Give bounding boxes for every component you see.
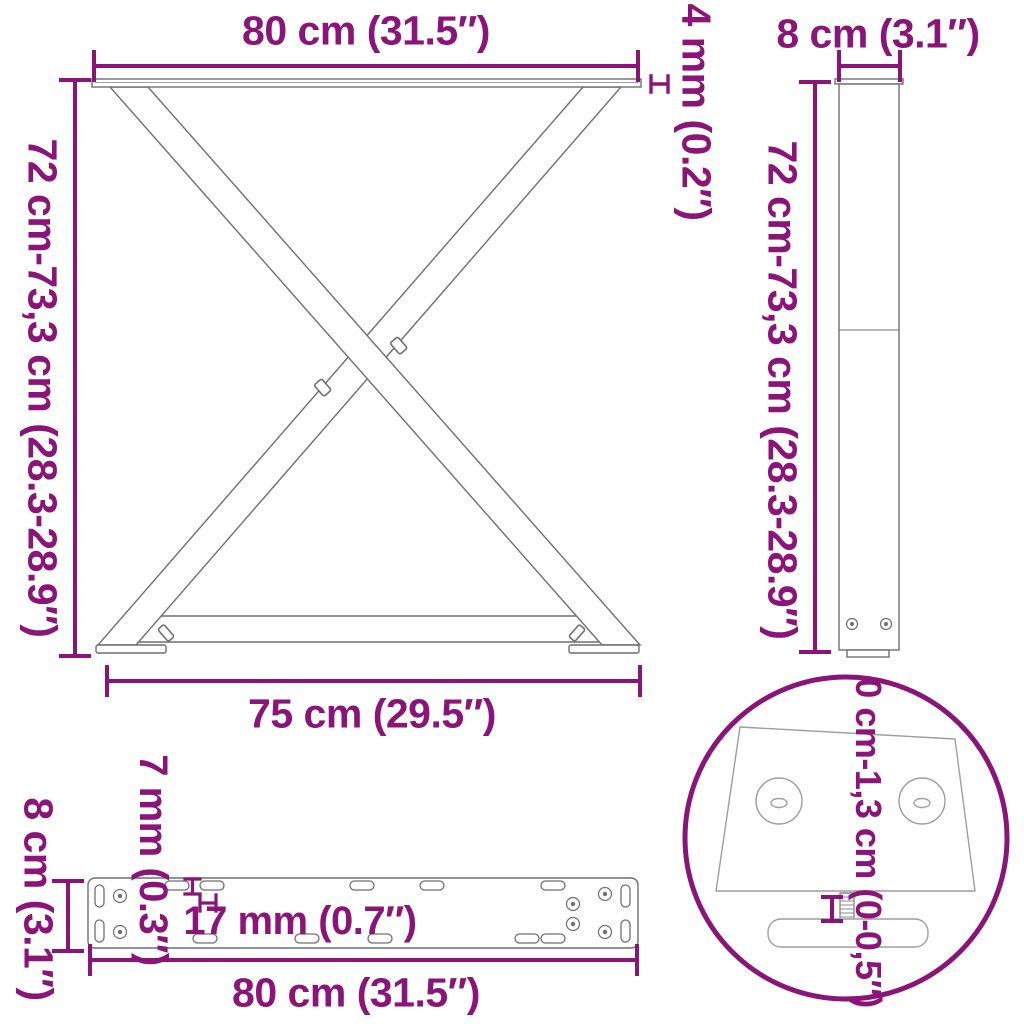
side-leg-body: [839, 84, 899, 650]
detail-adjustment-range-label: 0 cm-1,3 cm (0-0,5″): [850, 678, 886, 1007]
side-height-range-label: 72 cm-73,3 cm (28.3-28.9″): [762, 141, 803, 640]
side-view: [835, 79, 903, 657]
front-dim-thickness: [651, 76, 668, 92]
plate-width-label: 80 cm (31.5″): [232, 973, 480, 1014]
side-top-cap: [835, 79, 903, 84]
front-plate-thickness-label: 4 mm (0.2″): [676, 4, 717, 221]
plate-depth-label: 8 cm (3.1″): [18, 797, 59, 1000]
front-height-range-label: 72 cm-73,3 cm (28.3-28.9″): [22, 139, 63, 638]
side-depth-label: 8 cm (3.1″): [776, 14, 979, 55]
front-top-plate: [92, 79, 641, 87]
front-bottom-stretcher: [114, 616, 628, 642]
plate-hole-diameter-label: 7 mm (0.3″): [133, 754, 173, 966]
detail-view: [685, 677, 1007, 999]
side-foot: [847, 650, 889, 657]
front-dim-top: [94, 52, 638, 80]
front-width-top-label: 80 cm (31.5″): [242, 11, 490, 52]
front-view: [92, 79, 641, 653]
dimension-diagram: 80 cm (31.5″) 4 mm (0.2″) 72 cm-73,3 cm …: [0, 0, 1024, 1024]
front-width-bottom-label: 75 cm (29.5″): [248, 694, 496, 735]
front-feet: [96, 645, 639, 653]
plate-slot-length-label: 17 mm (0.7″): [183, 901, 416, 941]
